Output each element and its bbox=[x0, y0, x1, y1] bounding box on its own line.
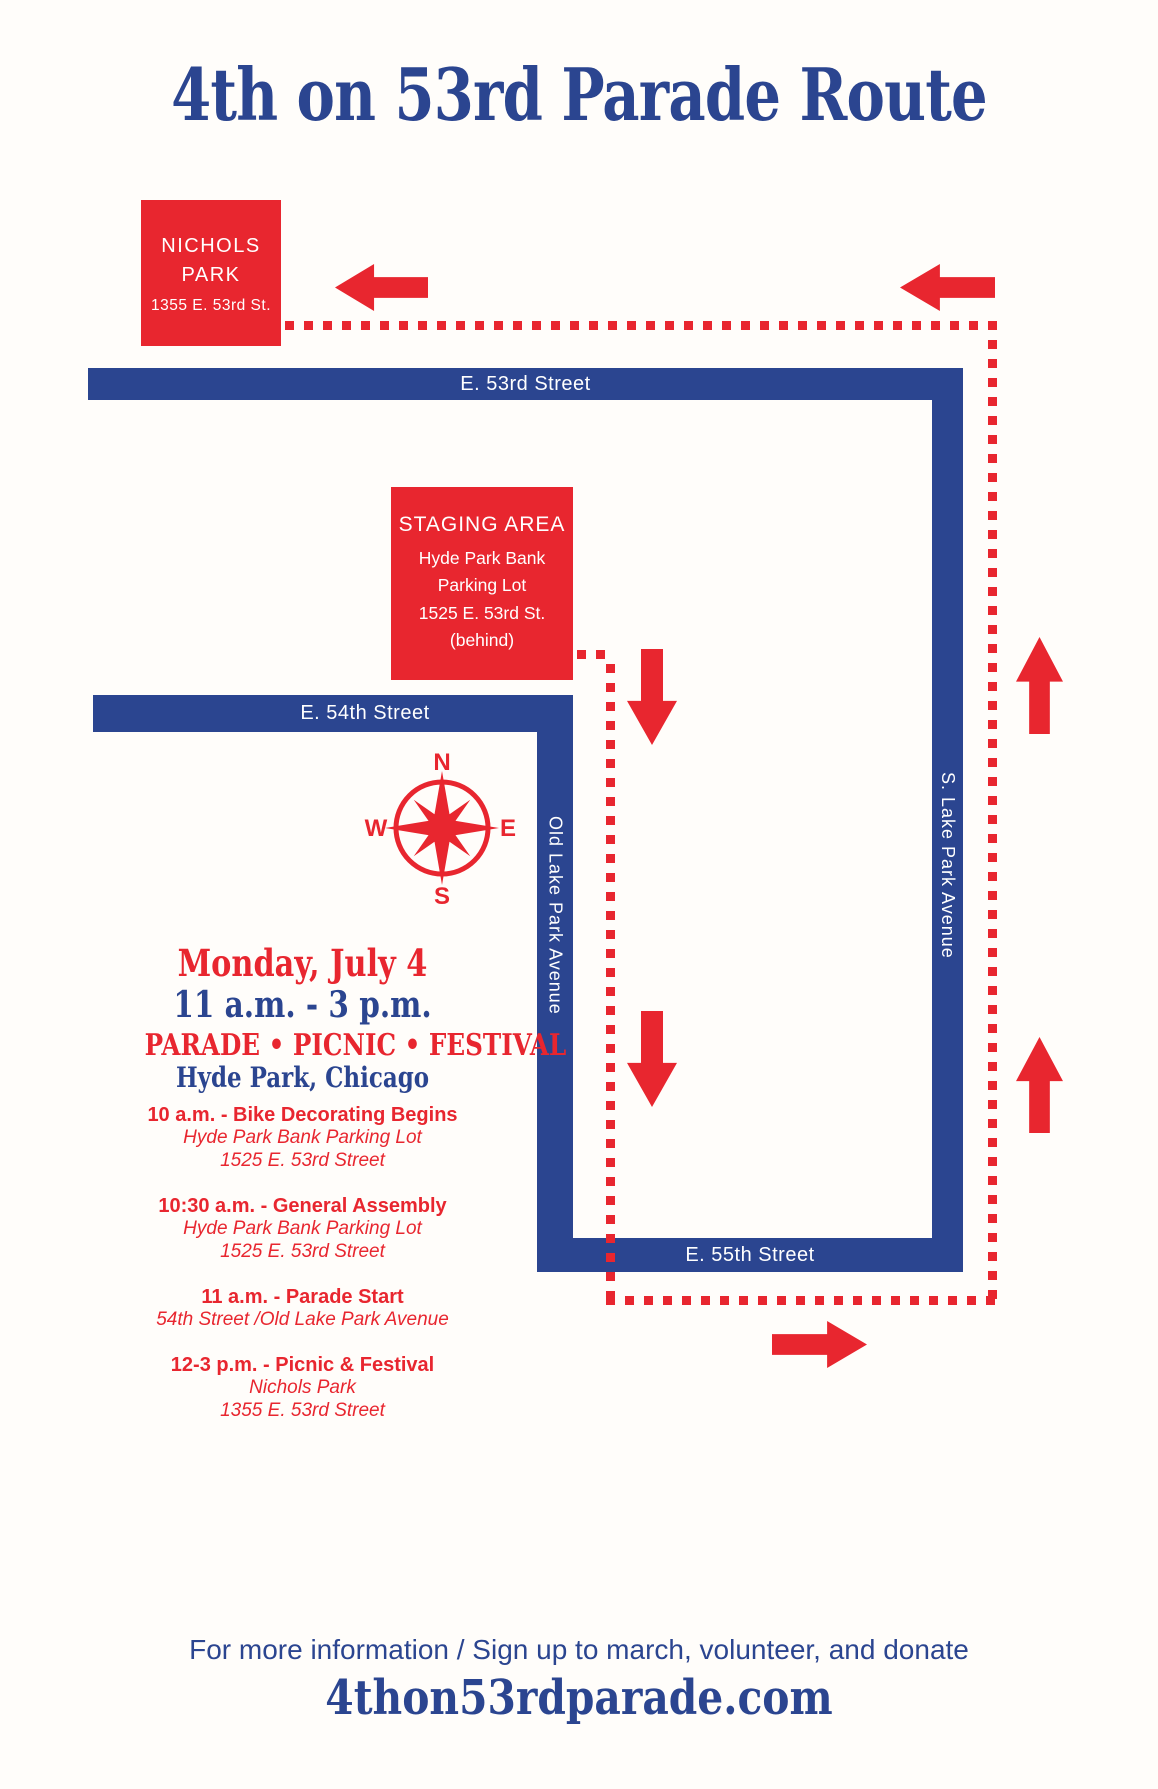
route-dotted-line-top bbox=[285, 321, 997, 330]
staging-area-line4: (behind) bbox=[450, 627, 514, 654]
route-dotted-line-staging-connector bbox=[577, 650, 615, 659]
event-tagline: PARADE • PICNIC • FESTIVAL bbox=[145, 1029, 461, 1062]
schedule-item: 10:30 a.m. - General Assembly Hyde Park … bbox=[110, 1195, 495, 1264]
arrow-right-icon bbox=[772, 1321, 867, 1368]
staging-area-box: STAGING AREA Hyde Park Bank Parking Lot … bbox=[391, 487, 573, 680]
schedule-item-title: 10 a.m. - Bike Decorating Begins bbox=[110, 1104, 495, 1127]
arrow-left-icon bbox=[900, 264, 995, 311]
schedule-item-detail: Hyde Park Bank Parking Lot bbox=[110, 1218, 495, 1241]
schedule-item: 12-3 p.m. - Picnic & Festival Nichols Pa… bbox=[110, 1354, 495, 1423]
route-dotted-line-right bbox=[988, 321, 997, 1305]
nichols-park-address: 1355 E. 53rd St. bbox=[151, 297, 271, 315]
arrow-down-icon bbox=[627, 1011, 677, 1107]
staging-area-line1: Hyde Park Bank bbox=[419, 545, 545, 572]
schedule-list: 10 a.m. - Bike Decorating Begins Hyde Pa… bbox=[110, 1104, 495, 1445]
compass-label-east: E bbox=[500, 815, 516, 842]
schedule-item-detail: Hyde Park Bank Parking Lot bbox=[110, 1127, 495, 1150]
street-label-old-lake-park: Old Lake Park Avenue bbox=[545, 816, 566, 1015]
event-headline-block: Monday, July 4 11 a.m. - 3 p.m. PARADE •… bbox=[145, 942, 461, 1094]
staging-area-line2: Parking Lot bbox=[438, 572, 527, 599]
footer-info-text: For more information / Sign up to march,… bbox=[0, 1634, 1158, 1666]
schedule-item-title: 10:30 a.m. - General Assembly bbox=[110, 1195, 495, 1218]
street-label-e53rd: E. 53rd Street bbox=[460, 373, 590, 396]
schedule-item: 11 a.m. - Parade Start 54th Street /Old … bbox=[110, 1286, 495, 1332]
arrow-up-icon bbox=[1016, 1037, 1063, 1133]
event-time: 11 a.m. - 3 p.m. bbox=[145, 985, 461, 1026]
street-bar-e54th: E. 54th Street bbox=[93, 695, 573, 732]
schedule-item-title: 11 a.m. - Parade Start bbox=[110, 1286, 495, 1309]
staging-area-line3: 1525 E. 53rd St. bbox=[419, 600, 545, 627]
nichols-park-name: NICHOLS PARK bbox=[141, 232, 281, 290]
street-label-e55th: E. 55th Street bbox=[685, 1244, 814, 1267]
schedule-item-title: 12-3 p.m. - Picnic & Festival bbox=[110, 1354, 495, 1377]
parade-route-poster: 4th on 53rd Parade Route E. 53rd Street … bbox=[0, 0, 1158, 1789]
street-bar-s-lake-park: S. Lake Park Avenue bbox=[932, 368, 963, 1272]
footer-website: 4thon53rdparade.com bbox=[87, 1670, 1071, 1726]
schedule-item-detail: 1525 E. 53rd Street bbox=[110, 1150, 495, 1173]
arrow-up-icon bbox=[1016, 637, 1063, 734]
schedule-item-detail: 54th Street /Old Lake Park Avenue bbox=[110, 1309, 495, 1332]
street-label-s-lake-park: S. Lake Park Avenue bbox=[937, 772, 958, 959]
compass-label-west: W bbox=[365, 815, 388, 842]
route-dotted-line-middle bbox=[606, 664, 615, 1305]
schedule-item-detail: Nichols Park bbox=[110, 1377, 495, 1400]
route-dotted-line-bottom bbox=[606, 1296, 997, 1305]
nichols-park-box: NICHOLS PARK 1355 E. 53rd St. bbox=[141, 200, 281, 346]
compass-rose-icon: N E S W bbox=[361, 744, 523, 910]
staging-area-name: STAGING AREA bbox=[399, 513, 566, 537]
compass-cardinal-star bbox=[385, 771, 499, 885]
compass-label-south: S bbox=[434, 883, 450, 910]
compass-label-north: N bbox=[433, 749, 450, 776]
schedule-item-detail: 1525 E. 53rd Street bbox=[110, 1241, 495, 1264]
street-bar-old-lake-park: Old Lake Park Avenue bbox=[537, 732, 573, 1272]
street-label-e54th: E. 54th Street bbox=[300, 702, 429, 725]
street-bar-e55th: E. 55th Street bbox=[537, 1238, 963, 1272]
schedule-item: 10 a.m. - Bike Decorating Begins Hyde Pa… bbox=[110, 1104, 495, 1173]
event-location: Hyde Park, Chicago bbox=[145, 1062, 461, 1094]
page-title: 4th on 53rd Parade Route bbox=[116, 52, 1042, 137]
arrow-left-icon bbox=[335, 264, 428, 311]
arrow-down-icon bbox=[627, 649, 677, 745]
schedule-item-detail: 1355 E. 53rd Street bbox=[110, 1400, 495, 1423]
event-date: Monday, July 4 bbox=[145, 942, 461, 985]
street-bar-e53rd: E. 53rd Street bbox=[88, 368, 963, 400]
